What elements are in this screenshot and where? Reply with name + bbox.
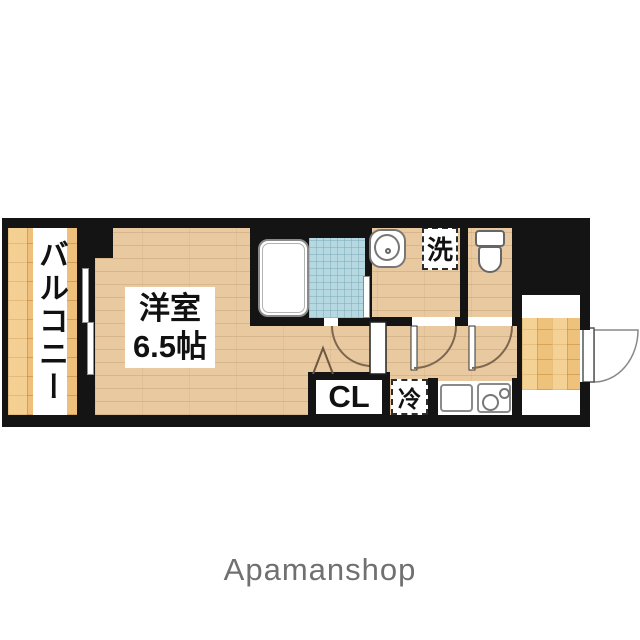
washer-label: 洗 — [427, 230, 453, 267]
toilet-door-arc-icon — [472, 326, 512, 368]
outer-wall-bottom — [2, 415, 590, 427]
entrance-tile — [522, 318, 580, 390]
balcony-label: バルコニー — [33, 228, 67, 415]
room-name: 洋室 — [139, 290, 201, 328]
washroom-door-arc-icon — [414, 326, 456, 368]
outer-wall-right-lower — [580, 382, 590, 427]
brand-text: Apamanshop — [0, 552, 640, 588]
bathtub-icon — [258, 239, 309, 317]
bathroom-floor-tile — [309, 238, 365, 318]
kitchen-sink-icon — [440, 384, 473, 412]
faucet-dot-icon — [385, 248, 391, 254]
front-door-arc-icon — [594, 330, 638, 382]
toilet-door-leaf-icon — [469, 326, 475, 370]
outer-wall-left — [2, 218, 8, 427]
room-label: 洋室 6.5帖 — [125, 287, 215, 368]
washroom-door-leaf-icon — [411, 326, 417, 370]
bathroom-door-leaf-icon — [370, 322, 386, 374]
bathroom — [250, 228, 372, 326]
interior-doors-icon — [250, 317, 530, 387]
stove-icon — [477, 383, 511, 413]
folding-door-icon — [313, 348, 333, 374]
washer-box: 洗 — [422, 227, 458, 270]
outer-wall-right-upper — [580, 218, 590, 330]
toilet-bowl-icon — [478, 246, 502, 273]
bathroom-side-door-icon — [363, 276, 370, 318]
wall-corner-block — [77, 228, 113, 258]
outer-wall-top — [2, 218, 590, 228]
window-sash-top-icon — [82, 268, 89, 323]
front-door-leaf-icon — [583, 328, 594, 382]
burner-small-icon — [499, 388, 510, 399]
room-size: 6.5帖 — [133, 328, 207, 366]
balcony-label-strip: バルコニー — [33, 228, 67, 415]
washbasin-icon — [369, 229, 406, 268]
partition-wall — [460, 228, 468, 317]
front-door-icon — [578, 323, 640, 389]
entrance — [522, 295, 580, 415]
toilet-tank-icon — [475, 230, 505, 247]
bathroom-door-arc-icon — [332, 326, 372, 366]
window-sash-bottom-icon — [87, 322, 94, 375]
burner-large-icon — [482, 394, 499, 411]
floor-plan: バルコニー CL 冷 — [0, 0, 640, 640]
